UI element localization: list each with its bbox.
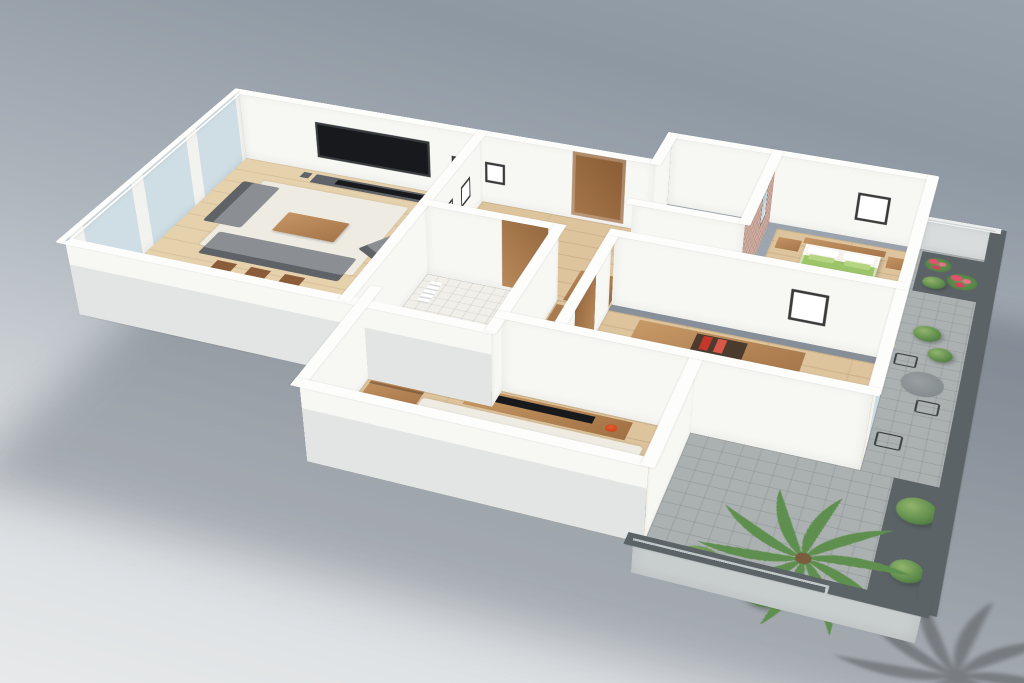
tv-on-wall xyxy=(317,124,428,174)
picture-frame xyxy=(854,192,891,225)
picture-frame xyxy=(485,161,505,185)
scene-background xyxy=(0,0,1024,683)
picture-frame xyxy=(461,176,471,208)
floor-plan xyxy=(0,132,991,661)
front-door xyxy=(571,151,626,224)
picture-frame xyxy=(788,288,830,326)
